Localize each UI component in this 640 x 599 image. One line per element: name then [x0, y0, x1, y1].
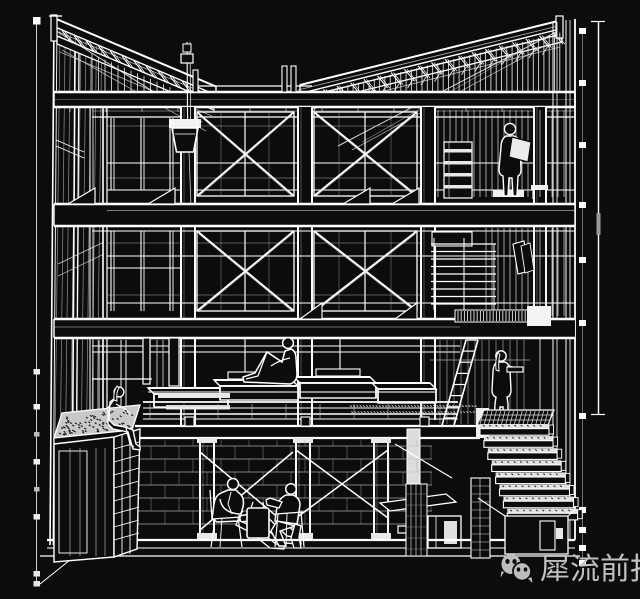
svg-text:犀流前报: 犀流前报: [540, 553, 640, 586]
